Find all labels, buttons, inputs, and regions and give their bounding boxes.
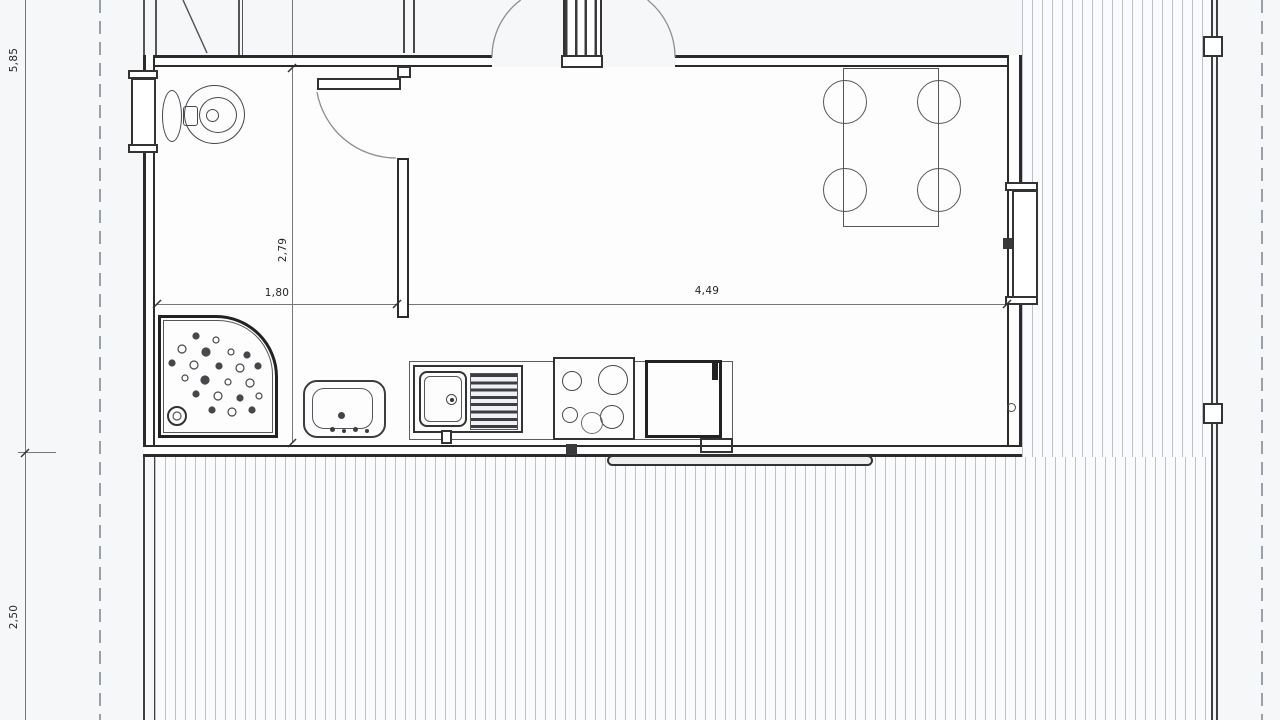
washbasin-dot (353, 427, 358, 432)
wall-north-right (675, 55, 1022, 67)
bathroom-door-hinge (397, 66, 411, 78)
sliding-threshold (607, 455, 873, 466)
east-door-handle (1007, 403, 1016, 412)
dimension-label-449: 4,49 (690, 284, 724, 298)
cooktop-burner (562, 407, 578, 423)
cooktop-burner (598, 365, 628, 395)
porch-wall (403, 0, 415, 53)
entry-double-door-leaves (563, 0, 602, 55)
chair (917, 168, 961, 212)
porch-wall (143, 0, 157, 55)
dimension-label-250: 2,50 (0, 602, 28, 632)
dimension-label-279: 2,79 (269, 235, 297, 265)
toilet-drain (206, 109, 219, 122)
boundary-dashed-line-right (1261, 0, 1263, 720)
entry-door-sill (561, 55, 603, 68)
shower-tray-inner (163, 320, 273, 433)
wall-partition-bathroom (397, 158, 409, 318)
cooktop-burner (600, 405, 624, 429)
porch-wall (238, 0, 243, 55)
west-window-panel (131, 78, 156, 146)
wall-south (143, 445, 1022, 457)
door-stop (566, 444, 577, 455)
deck-edge-left (143, 457, 155, 720)
deck-post (1203, 403, 1223, 424)
deck-post (1203, 36, 1223, 57)
cooktop-burner (581, 412, 603, 434)
boundary-dashed-line-left (99, 0, 101, 720)
dimension-label-180: 1,80 (260, 286, 294, 300)
chair (823, 80, 867, 124)
deck-edge-right (1211, 0, 1218, 720)
chair (823, 168, 867, 212)
washbasin-dot (342, 429, 346, 433)
east-window-latch (1003, 238, 1012, 249)
terrace-deck-right (1022, 0, 1211, 457)
chair (917, 80, 961, 124)
toilet-cistern (162, 90, 182, 142)
bathroom-door-leaf (317, 78, 401, 90)
east-window-panel (1012, 190, 1038, 298)
dimension-tick-line (18, 452, 56, 453)
west-window-cap-bottom (128, 144, 158, 153)
cooktop-burner (562, 371, 582, 391)
wall-north-left (143, 55, 492, 67)
dimension-line-horizontal (157, 304, 1007, 305)
washbasin-tap (338, 412, 345, 419)
kitchen-sink-drain-dot (450, 398, 454, 402)
washbasin-inner (312, 388, 373, 429)
washbasin-dot (365, 429, 369, 433)
east-window-cap-bottom (1005, 296, 1038, 305)
kitchen-tap (441, 430, 452, 444)
refrigerator-handle (712, 363, 718, 380)
terrace-deck-lower (155, 457, 1211, 720)
kitchen-step (700, 438, 733, 453)
dimension-label-585: 5,85 (0, 45, 28, 75)
floor-plan-canvas: 5,85 2,50 1,80 4,49 2,79 (0, 0, 1280, 720)
refrigerator (645, 360, 722, 438)
kitchen-sink-drainer (470, 373, 518, 430)
washbasin-dot (330, 427, 335, 432)
